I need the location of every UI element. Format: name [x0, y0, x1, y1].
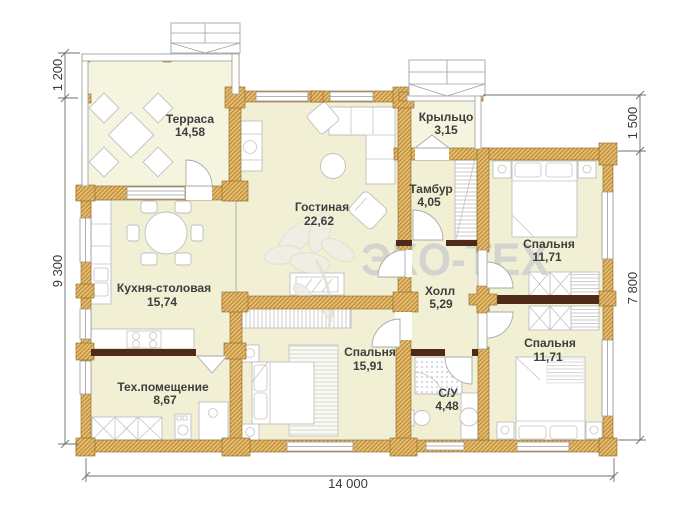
svg-text:14,58: 14,58 — [175, 125, 205, 139]
svg-text:Кухня-столовая: Кухня-столовая — [117, 281, 211, 295]
svg-text:4,05: 4,05 — [417, 195, 441, 209]
svg-text:Терраса: Терраса — [166, 112, 215, 126]
svg-text:11,71: 11,71 — [532, 250, 562, 264]
svg-text:С/У: С/У — [438, 386, 458, 400]
svg-text:15,74: 15,74 — [147, 295, 177, 309]
svg-text:1 500: 1 500 — [625, 107, 640, 140]
svg-text:1 200: 1 200 — [50, 59, 65, 92]
svg-text:Спальня: Спальня — [344, 345, 396, 359]
svg-text:Спальня: Спальня — [523, 237, 575, 251]
svg-text:Крыльцо: Крыльцо — [419, 110, 474, 124]
svg-text:11,71: 11,71 — [533, 350, 563, 364]
svg-text:Тех.помещение: Тех.помещение — [117, 380, 209, 394]
svg-text:Гостиная: Гостиная — [295, 200, 349, 214]
svg-text:4,48: 4,48 — [435, 399, 459, 413]
svg-text:15,91: 15,91 — [353, 359, 383, 373]
svg-text:3,15: 3,15 — [434, 123, 458, 137]
svg-text:Спальня: Спальня — [524, 336, 576, 350]
svg-text:Тамбур: Тамбур — [409, 182, 453, 196]
svg-text:7 800: 7 800 — [625, 272, 640, 305]
svg-text:Холл: Холл — [425, 284, 455, 298]
svg-text:14 000: 14 000 — [328, 476, 368, 491]
svg-text:8,67: 8,67 — [153, 393, 177, 407]
svg-text:22,62: 22,62 — [304, 214, 334, 228]
svg-text:5,29: 5,29 — [429, 297, 453, 311]
svg-text:9 300: 9 300 — [50, 255, 65, 288]
